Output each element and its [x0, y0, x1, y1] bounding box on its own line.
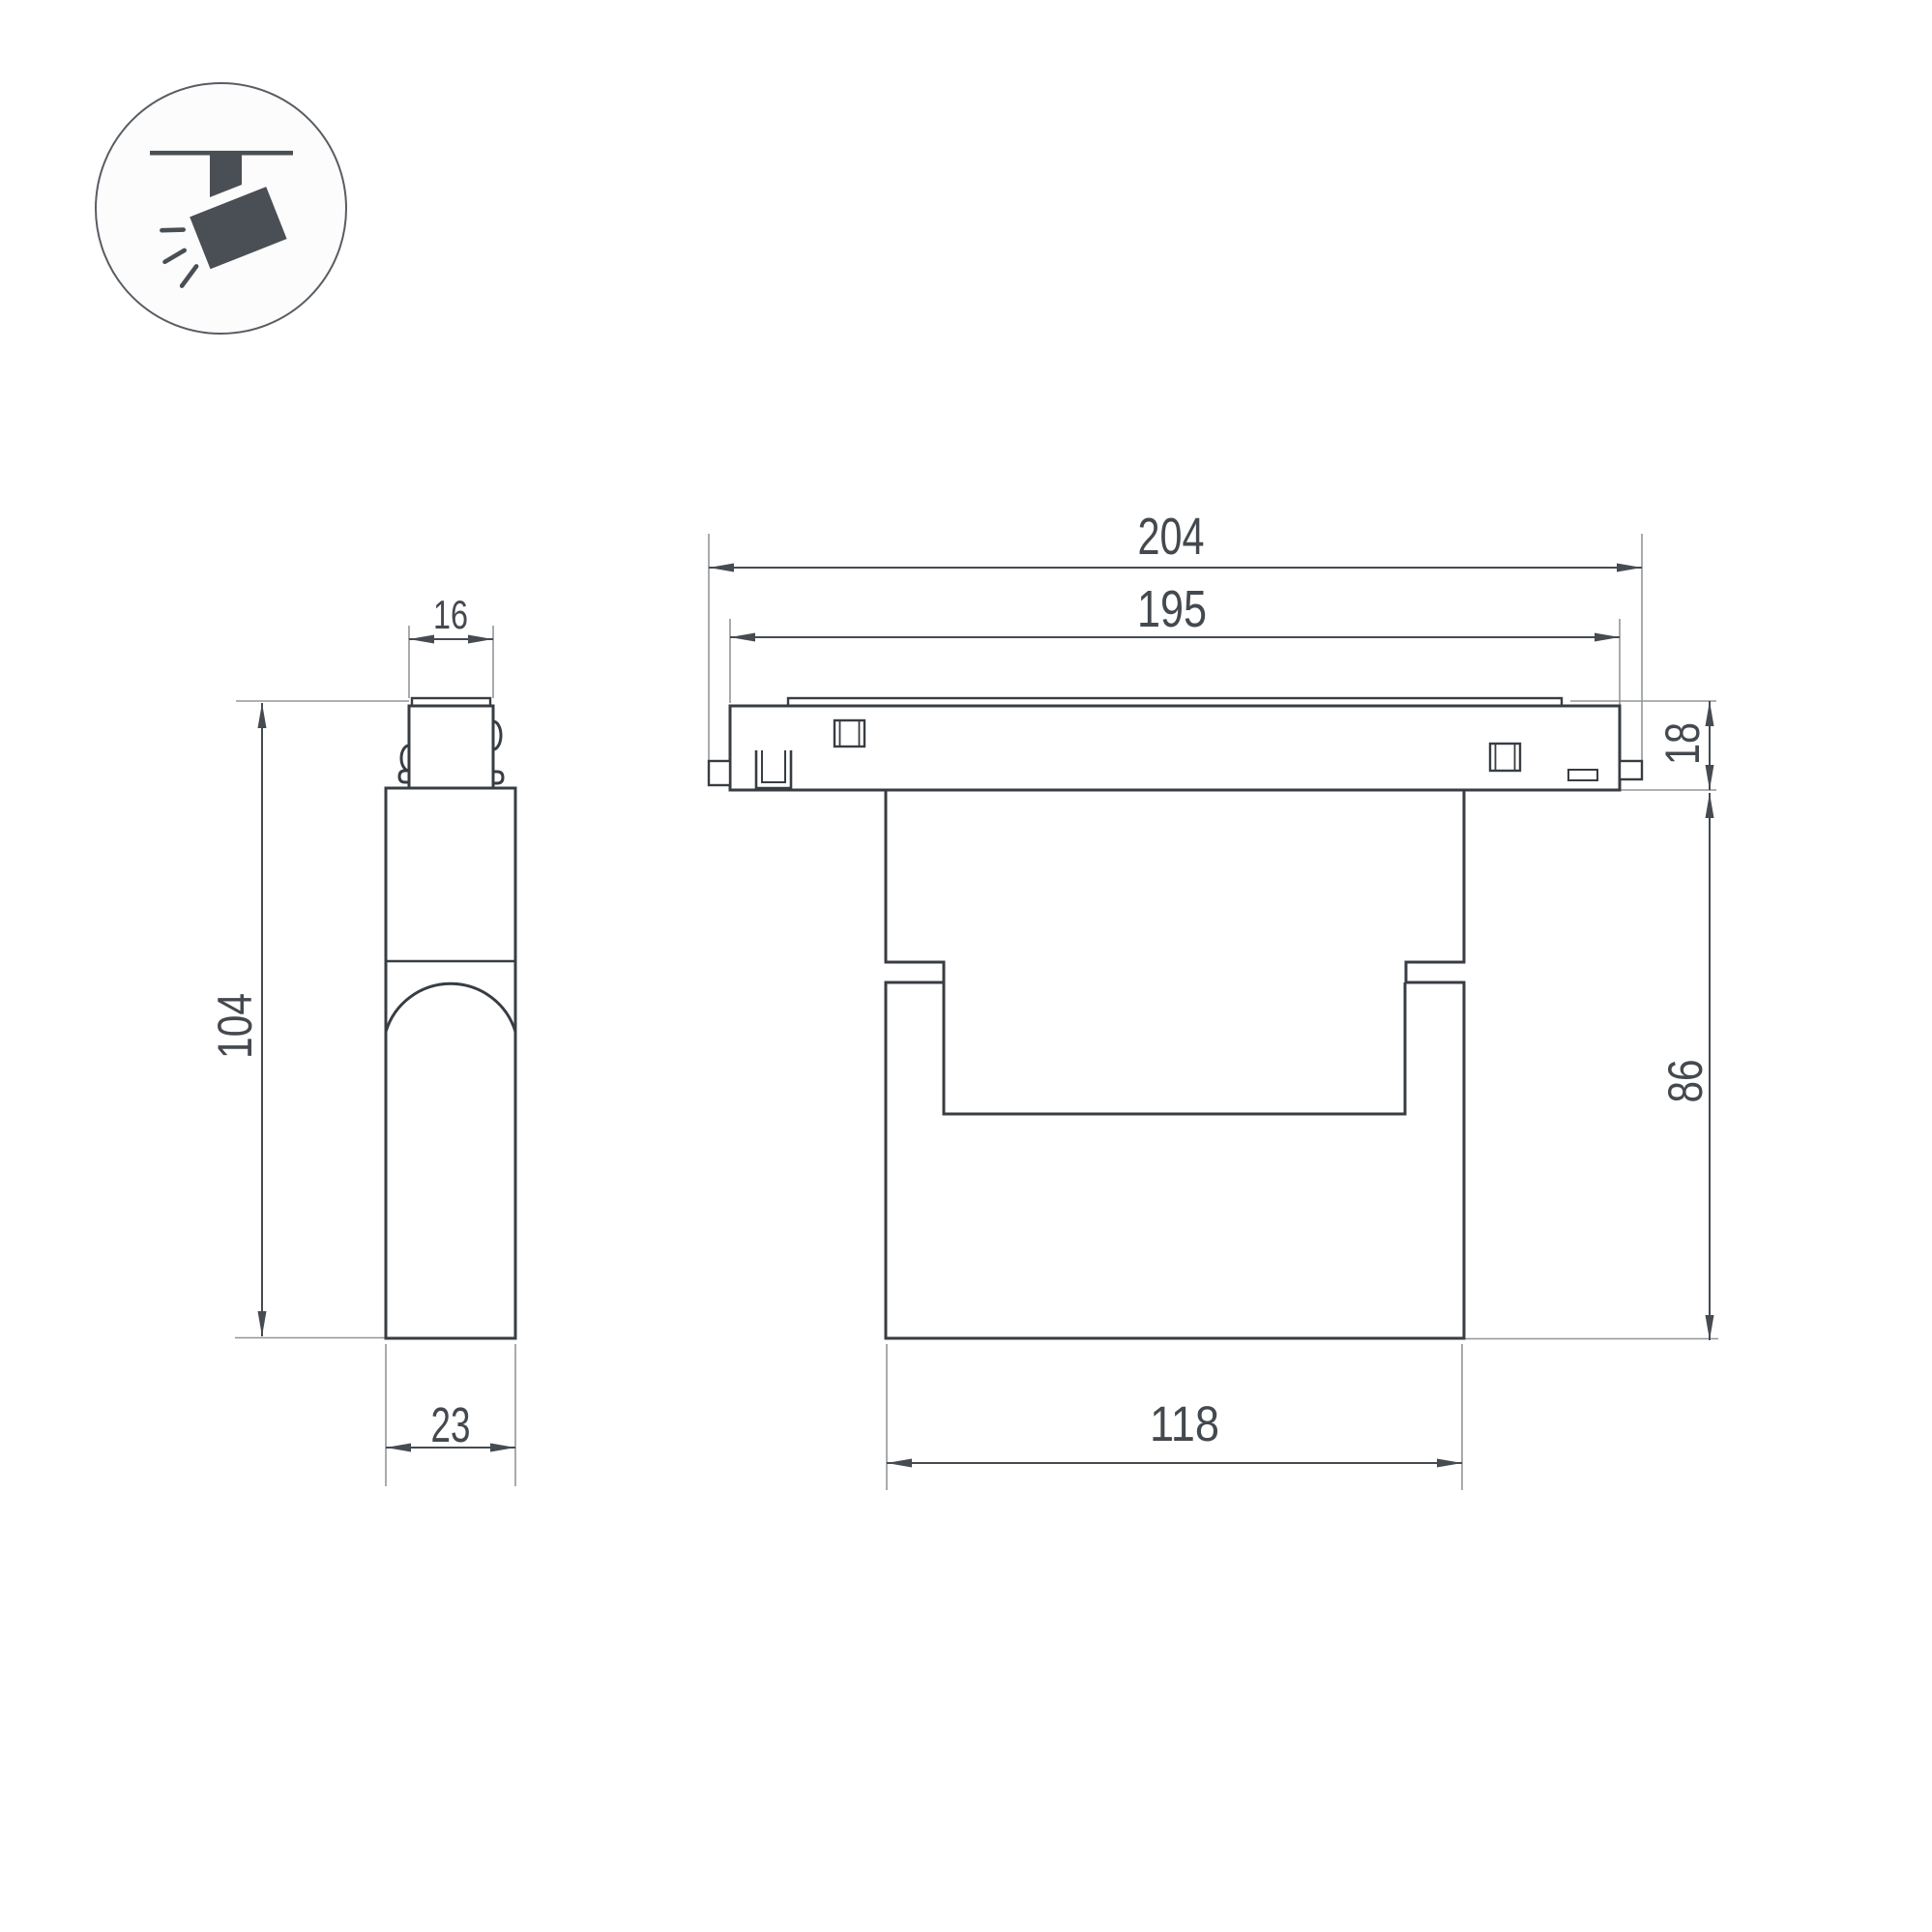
- svg-text:18: 18: [1655, 722, 1710, 765]
- svg-text:204: 204: [1138, 508, 1205, 566]
- svg-text:23: 23: [431, 1397, 471, 1452]
- svg-text:104: 104: [208, 993, 262, 1059]
- svg-text:118: 118: [1150, 1396, 1219, 1451]
- svg-text:86: 86: [1658, 1060, 1712, 1103]
- svg-text:195: 195: [1137, 580, 1207, 638]
- svg-text:16: 16: [433, 592, 468, 637]
